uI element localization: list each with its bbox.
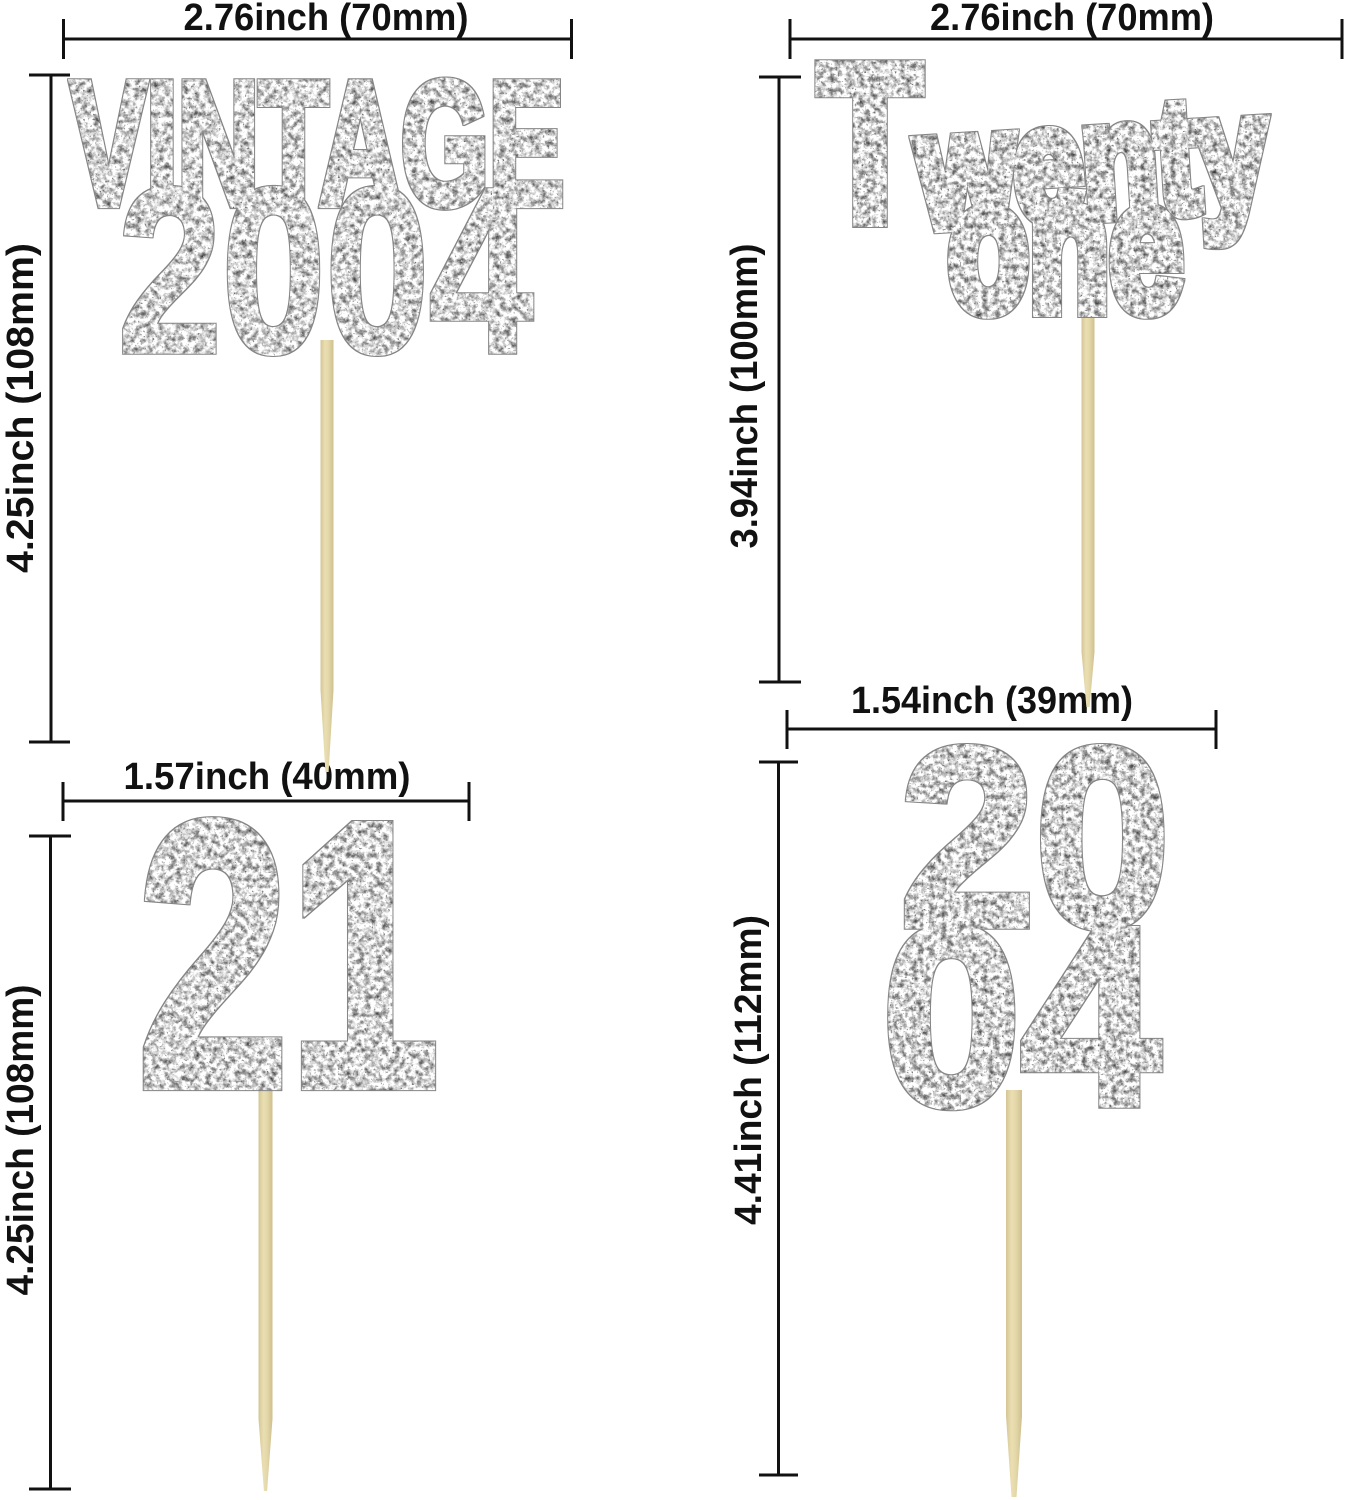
svg-text:3.94inch (100mm): 3.94inch (100mm)	[724, 244, 766, 549]
svg-text:T: T	[818, 17, 922, 269]
svg-text:2.76inch (70mm): 2.76inch (70mm)	[930, 0, 1214, 39]
svg-text:2.76inch (70mm): 2.76inch (70mm)	[184, 0, 469, 39]
svg-text:4.41inch (112mm): 4.41inch (112mm)	[728, 915, 770, 1225]
svg-text:one: one	[948, 144, 1183, 350]
svg-text:4.25inch (108mm): 4.25inch (108mm)	[0, 985, 42, 1296]
svg-text:2004: 2004	[118, 138, 533, 401]
svg-text:4.25inch (108mm): 4.25inch (108mm)	[0, 243, 42, 573]
svg-text:21: 21	[138, 744, 439, 1165]
svg-text:04: 04	[882, 876, 1162, 1159]
